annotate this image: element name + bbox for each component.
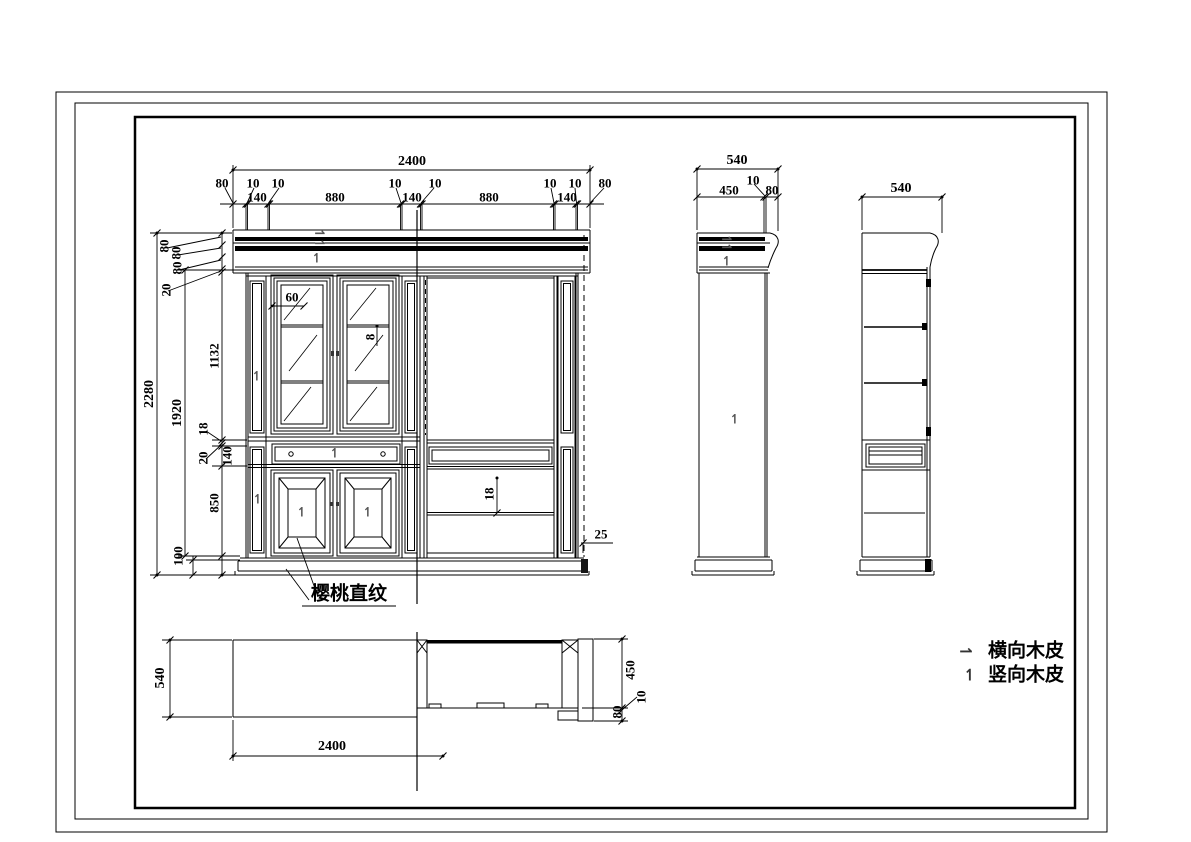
dim-front-mid-880: 880	[479, 191, 499, 204]
grain-vertical-icon: ↿	[330, 447, 341, 462]
dim-front-plinth-100: 100	[172, 546, 185, 566]
dim-side-edge-80: 80	[766, 184, 779, 197]
dim-front-crown-80: 80	[170, 247, 183, 260]
plan-fills	[427, 640, 562, 644]
dim-plan-inner-450: 450	[624, 660, 637, 680]
dim-front-top-10: 10	[429, 177, 442, 190]
plan-view	[233, 639, 593, 721]
grain-vertical-icon: ↿	[722, 255, 733, 270]
dimension-lines	[150, 165, 942, 761]
grain-vertical-icon: ↿	[297, 506, 308, 521]
dim-edge-25: 25	[595, 528, 608, 541]
dim-side-width-540: 540	[727, 154, 748, 168]
grain-vertical-icon: ↿	[730, 413, 741, 428]
dim-front-mid-140: 140	[402, 191, 422, 204]
dim-glass-shelf-8: 8	[364, 334, 377, 341]
dimension-dots	[156, 168, 944, 758]
cad-drawing-sheet: 2400 80 10 10 10 10 10 10 80 140 880 140…	[0, 0, 1191, 842]
grain-vertical-icon: ↿	[252, 370, 263, 385]
dim-front-top-10: 10	[389, 177, 402, 190]
dim-front-mid-880: 880	[325, 191, 345, 204]
dim-front-shelf-18: 18	[197, 423, 210, 436]
legend-vertical-grain-label: 竖向木皮	[988, 666, 1064, 685]
dim-plan-edge-80: 80	[611, 706, 624, 719]
dim-front-top-10: 10	[247, 177, 260, 190]
dim-plan-gap-10: 10	[635, 691, 648, 704]
dim-front-top-10: 10	[544, 177, 557, 190]
dim-side-depth-450: 450	[719, 184, 739, 197]
legend-horizontal-grain-icon: ⇀	[959, 642, 972, 661]
grain-horizontal-icon: ⇀	[315, 237, 326, 252]
dim-front-top-10: 10	[272, 177, 285, 190]
dim-front-height-overall: 2280	[143, 380, 157, 408]
dim-front-crown-80: 80	[171, 262, 184, 275]
dim-shelf-thickness-18: 18	[483, 488, 496, 501]
dim-front-gap-20: 20	[197, 452, 210, 465]
dim-front-top-80-right: 80	[599, 177, 612, 190]
dim-front-height-upper: 1920	[171, 399, 185, 427]
dim-stile-60: 60	[286, 291, 299, 304]
dim-front-top-80-left: 80	[216, 177, 229, 190]
dim-plan-depth-540: 540	[154, 668, 168, 689]
grain-vertical-icon: ↿	[312, 252, 323, 267]
legend-vertical-grain-icon: ↿	[963, 666, 976, 685]
grain-vertical-icon: ↿	[253, 493, 264, 508]
dim-front-mid-140: 140	[247, 191, 267, 204]
grain-vertical-icon: ↿	[363, 506, 374, 521]
dim-front-glass-section: 1132	[208, 343, 221, 368]
dim-section-width-540: 540	[891, 182, 912, 196]
dim-plan-width-2400: 2400	[318, 740, 346, 754]
dim-side-gap-10: 10	[747, 174, 760, 187]
dim-front-drawer-140: 140	[221, 446, 234, 466]
dim-front-top-10: 10	[569, 177, 582, 190]
grain-horizontal-icon: ⇀	[722, 241, 733, 256]
dim-front-overall-width: 2400	[398, 155, 426, 169]
dim-front-lower-850: 850	[208, 493, 221, 513]
dim-front-mid-140: 140	[557, 191, 577, 204]
side-view	[692, 233, 778, 575]
dim-front-crown-20: 20	[160, 284, 173, 297]
front-elevation	[233, 230, 590, 575]
material-note: 樱桃直纹	[311, 585, 387, 604]
legend-horizontal-grain-label: 横向木皮	[988, 642, 1064, 661]
